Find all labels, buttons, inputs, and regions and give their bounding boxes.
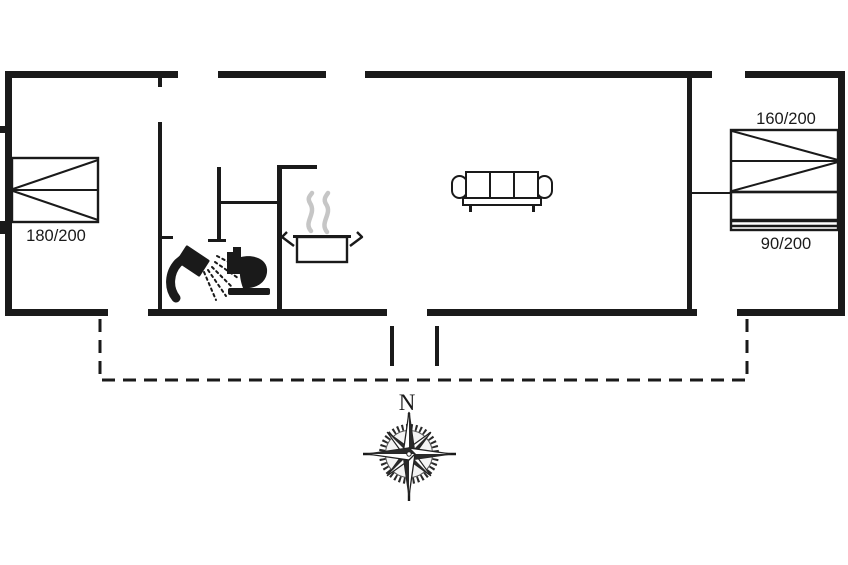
wall-segment <box>687 78 692 309</box>
floor-plan-drawing: 180/200 160/200 90/200 <box>0 0 848 565</box>
north-label: N <box>399 390 416 415</box>
wall-segment <box>5 71 178 78</box>
wall-segment <box>218 71 326 78</box>
terrace-outline <box>100 317 747 380</box>
steam-icon <box>308 193 312 231</box>
wall-segment <box>217 167 221 242</box>
wall-segment <box>148 309 387 316</box>
compass-rose-icon <box>363 412 456 501</box>
sofa-icon <box>452 172 552 212</box>
cooking-pot-icon <box>282 193 362 262</box>
door-jamb-tick <box>208 239 226 242</box>
door-jamb-tick <box>162 236 173 239</box>
wall-segment <box>221 201 279 204</box>
window-marker <box>0 126 5 133</box>
toilet-icon <box>227 247 270 295</box>
single-bed-icon <box>731 192 838 230</box>
bed-size-label: 180/200 <box>26 227 86 245</box>
wall-segment <box>745 71 845 78</box>
wall-segment <box>158 78 162 87</box>
wall-segment <box>365 71 712 78</box>
floor-plan: 180/200 160/200 90/200 <box>0 0 848 565</box>
wall-segment <box>737 309 845 316</box>
bed-size-label: 90/200 <box>761 235 811 253</box>
door-post <box>435 326 439 366</box>
steam-icon <box>324 193 328 232</box>
interior-walls <box>158 78 731 366</box>
wall-segment <box>5 309 108 316</box>
window-marker <box>0 221 5 234</box>
wall-segment <box>427 309 697 316</box>
double-bed-icon <box>731 130 838 192</box>
wall-segment <box>692 192 731 194</box>
wall-segment <box>158 122 162 309</box>
double-bed-icon <box>12 158 98 222</box>
bed-size-label: 160/200 <box>756 110 816 128</box>
wall-segment <box>277 165 317 169</box>
wall-segment <box>277 167 282 309</box>
door-post <box>390 326 394 366</box>
